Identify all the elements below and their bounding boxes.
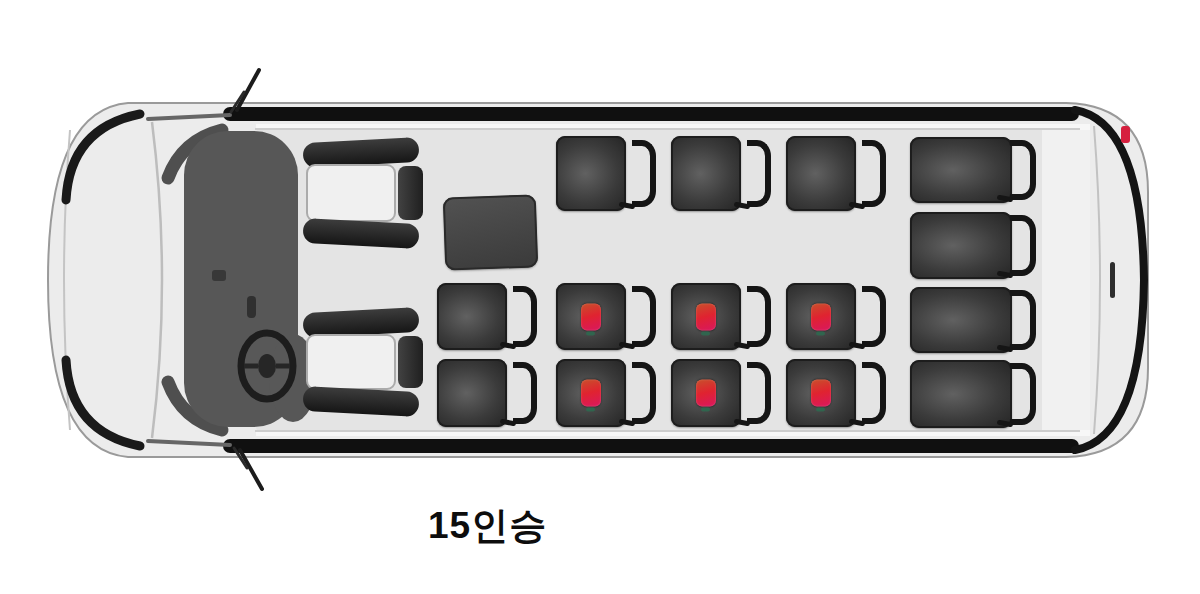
seat-bench-1	[910, 137, 1036, 203]
seat-headrest	[747, 286, 771, 346]
armrest	[302, 218, 419, 249]
seat-bench-4	[910, 360, 1036, 428]
seat-pad	[306, 164, 396, 222]
seat-cushion	[671, 136, 741, 211]
seat-front-passenger	[303, 140, 423, 246]
seat-bench-3	[910, 287, 1036, 353]
seat-row4-left	[671, 359, 771, 427]
seat-headrest	[862, 362, 886, 423]
seat-cushion	[910, 137, 1012, 203]
seat-bench-2	[910, 212, 1036, 279]
seat-row3-center	[556, 283, 656, 350]
seat-headrest	[862, 286, 886, 346]
seat-cushion	[910, 287, 1012, 353]
seat-cushion	[556, 136, 626, 211]
seat-headrest	[1010, 140, 1036, 199]
seat-headrest	[862, 140, 886, 208]
seat-row2-center	[437, 283, 537, 350]
capacity-label: 15인승	[428, 501, 547, 551]
seats-layer	[0, 0, 1200, 594]
seat-row3-left	[556, 359, 656, 427]
seat-cushion	[437, 359, 507, 427]
seat-backrest	[398, 336, 423, 388]
care-seat-marker	[581, 303, 601, 330]
care-seat-marker	[696, 380, 716, 407]
seat-headrest	[632, 140, 656, 208]
seat-cushion	[437, 283, 507, 350]
seat-row5-left	[786, 359, 886, 427]
care-seat-marker	[811, 380, 831, 407]
van-seating-diagram: 15인승	[0, 0, 1200, 594]
seat-headrest	[747, 140, 771, 208]
seat-headrest	[513, 286, 537, 346]
seat-pad	[306, 334, 396, 390]
seat-row5-center	[786, 283, 886, 350]
seat-row5-right	[786, 136, 886, 211]
care-seat-marker	[811, 303, 831, 330]
care-seat-marker	[696, 303, 716, 330]
seat-cushion	[910, 212, 1012, 279]
seat-headrest	[513, 362, 537, 423]
seat-headrest	[747, 362, 771, 423]
seat-headrest	[632, 362, 656, 423]
seat-cushion	[786, 136, 856, 211]
care-seat-marker	[581, 380, 601, 407]
armrest	[302, 386, 419, 417]
seat-headrest	[632, 286, 656, 346]
seat-driver	[303, 310, 423, 414]
seat-row2-left	[437, 359, 537, 427]
seat-cushion	[910, 360, 1012, 428]
seat-row3-right	[556, 136, 656, 211]
seat-headrest	[1010, 290, 1036, 349]
seat-row4-center	[671, 283, 771, 350]
seat-row4-right	[671, 136, 771, 211]
seat-backrest	[398, 166, 423, 220]
seat-headrest	[1010, 363, 1036, 424]
seat-headrest	[1010, 215, 1036, 275]
